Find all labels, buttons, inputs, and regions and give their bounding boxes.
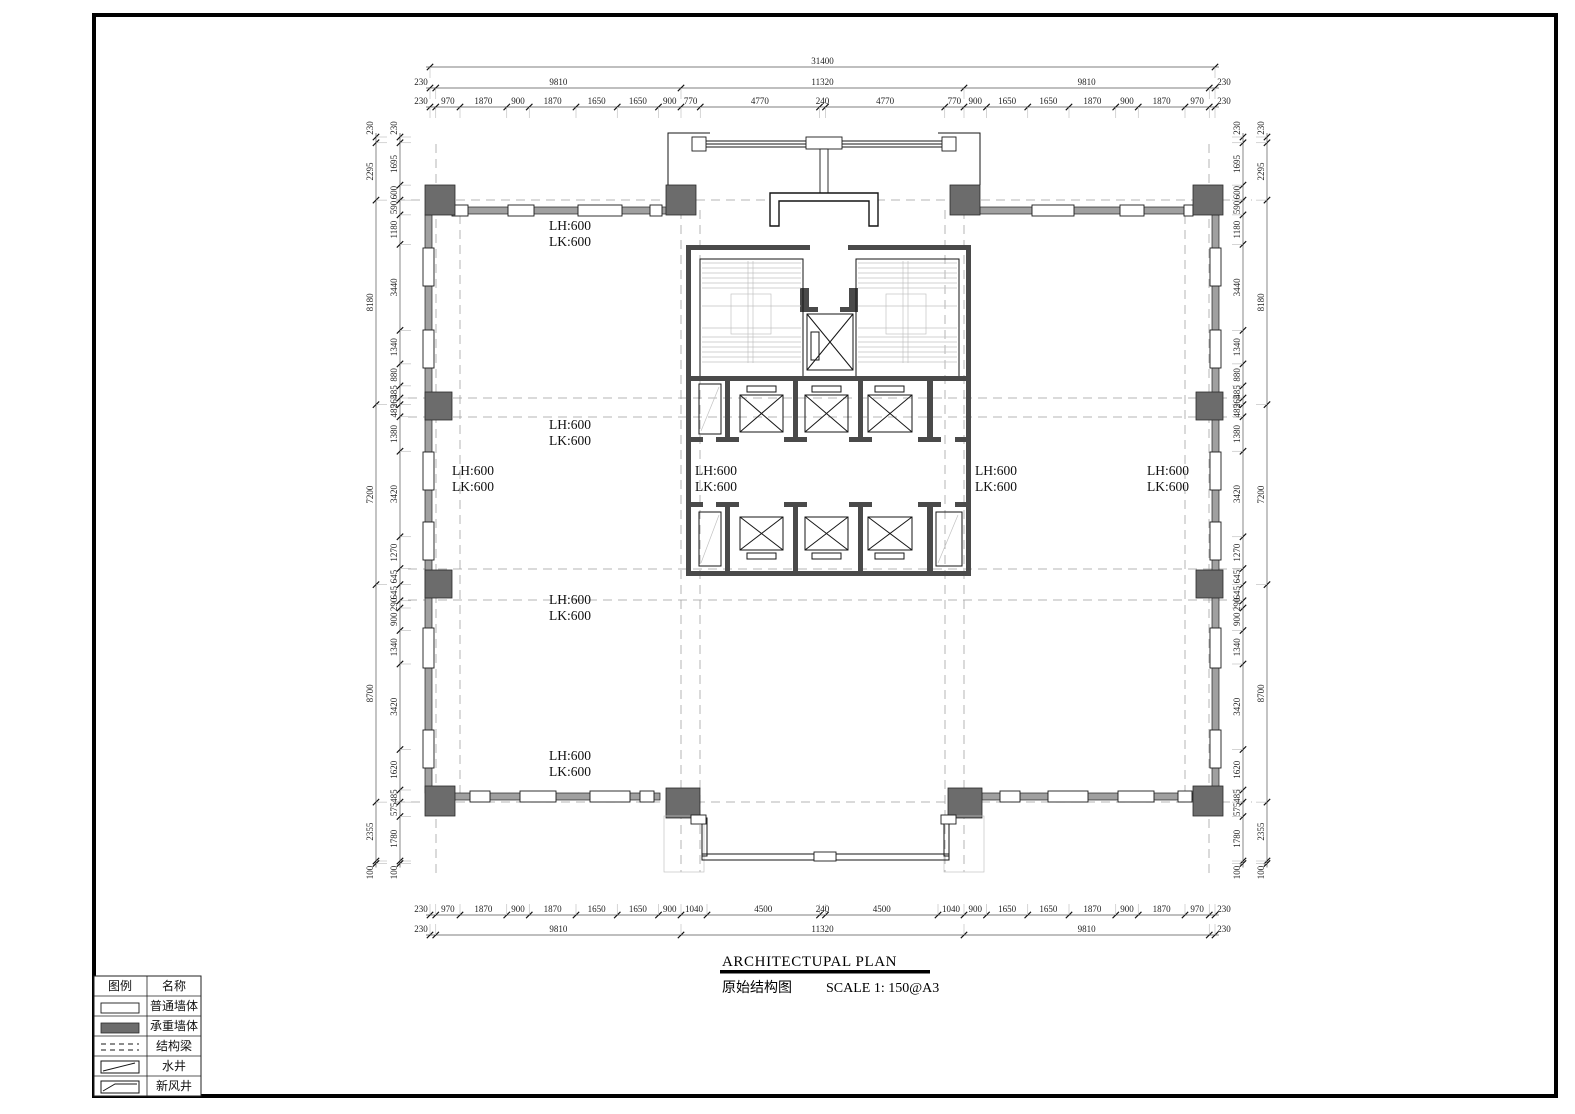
dimension-value: 1040	[942, 904, 961, 914]
lk-label: LK:600	[975, 479, 1017, 494]
dimension-value: 4500	[873, 904, 892, 914]
dim-chain-right-inner: 2301695600590118034401340880485265485138…	[1232, 121, 1246, 880]
dimension-value: 645	[1232, 569, 1242, 583]
dimension-value: 230	[414, 77, 428, 87]
elevator-bank-lower	[691, 502, 971, 576]
dimension-value: 485	[389, 403, 399, 417]
dimension-value: 600	[389, 185, 399, 199]
dimension-value: 600	[1232, 185, 1242, 199]
central-elevator-shaft	[807, 314, 853, 370]
dimension-value: 1870	[474, 904, 493, 914]
dimension-value: 100	[365, 865, 375, 879]
dimension-value: 1180	[389, 220, 399, 238]
legend-header-name: 名称	[162, 978, 186, 993]
perimeter-walls	[425, 207, 1219, 800]
dimension-value: 645	[1232, 585, 1242, 599]
dimension-value: 1340	[1232, 338, 1242, 357]
lh-label: LH:600	[549, 592, 591, 607]
window-openings	[423, 205, 1221, 802]
legend-symbol-plain-wall	[101, 1003, 139, 1013]
beam-label: LH:600LK:600	[1147, 463, 1189, 494]
dimension-value: 1870	[1153, 96, 1172, 106]
dimension-value: 1340	[389, 638, 399, 657]
lh-label: LH:600	[1147, 463, 1189, 478]
dimension-value: 880	[389, 368, 399, 382]
dimension-value: 590	[1232, 200, 1242, 214]
dimension-value: 1870	[474, 96, 493, 106]
bottom-bay	[664, 815, 984, 872]
legend-label: 水井	[162, 1059, 186, 1073]
drawing-title: ARCHITECTUPAL PLAN	[722, 954, 897, 970]
dimension-value: 100	[1232, 865, 1242, 879]
dimension-value: 11320	[811, 77, 834, 87]
dimension-value: 11320	[811, 924, 834, 934]
dimension-value: 970	[1190, 96, 1204, 106]
dimension-value: 770	[684, 96, 698, 106]
lk-label: LK:600	[695, 479, 737, 494]
drawing-name: 原始结构图	[722, 980, 792, 996]
dimension-value: 230	[1256, 121, 1266, 135]
dimension-value: 1380	[389, 425, 399, 444]
lh-label: LH:600	[549, 218, 591, 233]
beam-label: LH:600LK:600	[549, 417, 591, 448]
dimension-value: 4770	[876, 96, 895, 106]
dimension-value: 3420	[1232, 485, 1242, 504]
dimension-value: 2355	[365, 822, 375, 841]
dimension-value: 1870	[1153, 904, 1172, 914]
dimension-value: 290	[1232, 597, 1242, 611]
dimension-value: 900	[1120, 904, 1134, 914]
dimension-value: 900	[663, 904, 677, 914]
dimension-value: 8180	[365, 293, 375, 312]
core	[686, 245, 971, 576]
dimension-value: 485	[389, 789, 399, 803]
load-bearing-columns	[425, 185, 1223, 818]
dimension-value: 1780	[1232, 829, 1242, 848]
beam-label: LH:600LK:600	[975, 463, 1017, 494]
entrance-canopy	[668, 133, 980, 226]
dimension-value: 970	[441, 904, 455, 914]
dimension-value: 230	[414, 96, 428, 106]
dimension-value: 100	[389, 865, 399, 879]
lk-label: LK:600	[549, 234, 591, 249]
dimension-value: 31400	[811, 56, 834, 66]
beam-label: LH:600LK:600	[549, 748, 591, 779]
elevator-bank-upper	[691, 376, 966, 442]
dimension-value: 900	[1232, 612, 1242, 626]
stairwell-right	[856, 259, 959, 377]
dimension-value: 4500	[754, 904, 773, 914]
dimension-value: 240	[816, 96, 830, 106]
dimension-value: 8700	[365, 684, 375, 703]
legend-label: 结构梁	[156, 1038, 192, 1053]
dimension-value: 1340	[389, 338, 399, 357]
dimension-value: 900	[969, 904, 983, 914]
dimension-value: 485	[1232, 403, 1242, 417]
dimension-value: 290	[389, 597, 399, 611]
dimension-value: 3440	[389, 278, 399, 297]
dimension-value: 900	[663, 96, 677, 106]
dimension-value: 2295	[365, 162, 375, 181]
dimension-value: 1180	[1232, 220, 1242, 238]
dimension-value: 575	[389, 802, 399, 816]
dimension-value: 1650	[998, 904, 1017, 914]
legend-label: 新风井	[156, 1078, 192, 1093]
legend-label: 承重墙体	[150, 1019, 198, 1033]
dimension-value: 1695	[389, 154, 399, 173]
dimension-chains: 31400 2309810113209810230 23097018709001…	[365, 56, 1270, 938]
dimension-value: 230	[1217, 904, 1231, 914]
dimension-value: 645	[389, 585, 399, 599]
dimension-value: 1870	[544, 904, 563, 914]
lk-label: LK:600	[549, 608, 591, 623]
dimension-value: 880	[1232, 368, 1242, 382]
dimension-value: 2355	[1256, 822, 1266, 841]
dimension-value: 900	[1120, 96, 1134, 106]
dimension-value: 1650	[998, 96, 1017, 106]
dimension-value: 1870	[1083, 96, 1102, 106]
legend-label: 普通墙体	[150, 999, 198, 1013]
dimension-value: 9810	[549, 77, 568, 87]
dimension-value: 3420	[1232, 697, 1242, 716]
dimension-value: 100	[1256, 865, 1266, 879]
dimension-value: 900	[511, 96, 525, 106]
dimension-value: 4770	[751, 96, 770, 106]
dimension-value: 8180	[1256, 293, 1266, 312]
lk-label: LK:600	[549, 433, 591, 448]
dim-chain-left-inner: 2301695600590118034401340880485265485138…	[389, 121, 411, 880]
title-underline	[720, 970, 930, 974]
legend-symbol-bearing-wall	[101, 1023, 139, 1033]
dimension-value: 230	[1217, 924, 1231, 934]
drawing-canvas: LH:600LK:600 LH:600LK:600 LH:600LK:600 L…	[0, 0, 1575, 1114]
dimension-value: 590	[389, 200, 399, 214]
dimension-value: 7200	[365, 485, 375, 504]
dimension-value: 575	[1232, 802, 1242, 816]
dimension-value: 900	[389, 612, 399, 626]
lh-label: LH:600	[695, 463, 737, 478]
beam-label: LH:600LK:600	[452, 463, 494, 494]
dimension-value: 645	[389, 569, 399, 583]
dimension-value: 240	[816, 904, 830, 914]
dimension-value: 9810	[1078, 924, 1097, 934]
dim-chain-top-detail: 2309701870900187016501650900770477024047…	[414, 96, 1231, 118]
dimension-value: 1650	[588, 96, 607, 106]
beam-grid-lines	[396, 144, 1252, 875]
lh-label: LH:600	[549, 748, 591, 763]
beam-labels: LH:600LK:600 LH:600LK:600 LH:600LK:600 L…	[452, 218, 1189, 779]
dimension-value: 8700	[1256, 684, 1266, 703]
dimension-value: 1040	[685, 904, 704, 914]
dimension-value: 230	[1217, 77, 1231, 87]
dimension-value: 1780	[389, 829, 399, 848]
dimension-value: 485	[1232, 789, 1242, 803]
dimension-value: 900	[969, 96, 983, 106]
dim-chain-bottom-major: 2309810113209810230	[414, 924, 1231, 938]
dimension-value: 1650	[1039, 904, 1058, 914]
beam-label: LH:600LK:600	[549, 592, 591, 623]
dimension-value: 3420	[389, 697, 399, 716]
title-block: ARCHITECTUPAL PLAN 原始结构图 SCALE 1: 150@A3	[720, 954, 939, 996]
dimension-value: 900	[511, 904, 525, 914]
dim-chain-left-outer: 23022958180720087002355100	[365, 121, 387, 880]
dimension-value: 9810	[549, 924, 568, 934]
dim-chain-right-outer: 23022958180720087002355100	[1256, 121, 1270, 880]
lh-label: LH:600	[549, 417, 591, 432]
dimension-value: 230	[365, 121, 375, 135]
dimension-value: 230	[414, 924, 428, 934]
dimension-value: 1270	[1232, 543, 1242, 562]
lk-label: LK:600	[549, 764, 591, 779]
legend-header-symbol: 图例	[108, 979, 132, 993]
dimension-value: 970	[441, 96, 455, 106]
lk-label: LK:600	[1147, 479, 1189, 494]
dimension-value: 230	[1232, 121, 1242, 135]
beam-label: LH:600LK:600	[549, 218, 591, 249]
dimension-value: 230	[1217, 96, 1231, 106]
dimension-value: 1650	[629, 96, 648, 106]
dimension-value: 7200	[1256, 485, 1266, 504]
dim-chain-top-overall: 31400	[426, 56, 1219, 78]
lh-label: LH:600	[975, 463, 1017, 478]
dimension-value: 2295	[1256, 162, 1266, 181]
dim-chain-bottom-detail: 2309701870900187016501650900104045002404…	[414, 904, 1231, 918]
dimension-value: 1650	[1039, 96, 1058, 106]
dimension-value: 3420	[389, 485, 399, 504]
dimension-value: 9810	[1078, 77, 1097, 87]
dimension-value: 1340	[1232, 638, 1242, 657]
dimension-value: 1870	[544, 96, 563, 106]
dimension-value: 230	[389, 121, 399, 135]
dimension-value: 1380	[1232, 425, 1242, 444]
dimension-value: 1650	[588, 904, 607, 914]
dimension-value: 970	[1190, 904, 1204, 914]
dimension-value: 1870	[1083, 904, 1102, 914]
dimension-value: 1650	[629, 904, 648, 914]
dimension-value: 1620	[389, 760, 399, 779]
beam-label: LH:600LK:600	[695, 463, 737, 494]
canopy-bracket	[770, 193, 878, 226]
dimension-value: 1270	[389, 543, 399, 562]
stairwell-left	[700, 259, 803, 377]
legend-table: 图例 名称 普通墙体 承重墙体 结构梁 水井 新风井	[94, 976, 201, 1096]
dimension-value: 1695	[1232, 154, 1242, 173]
dimension-value: 770	[948, 96, 962, 106]
dimension-value: 230	[414, 904, 428, 914]
lh-label: LH:600	[452, 463, 494, 478]
lk-label: LK:600	[452, 479, 494, 494]
dimension-value: 3440	[1232, 278, 1242, 297]
dimension-value: 1620	[1232, 760, 1242, 779]
drawing-scale: SCALE 1: 150@A3	[826, 981, 939, 996]
